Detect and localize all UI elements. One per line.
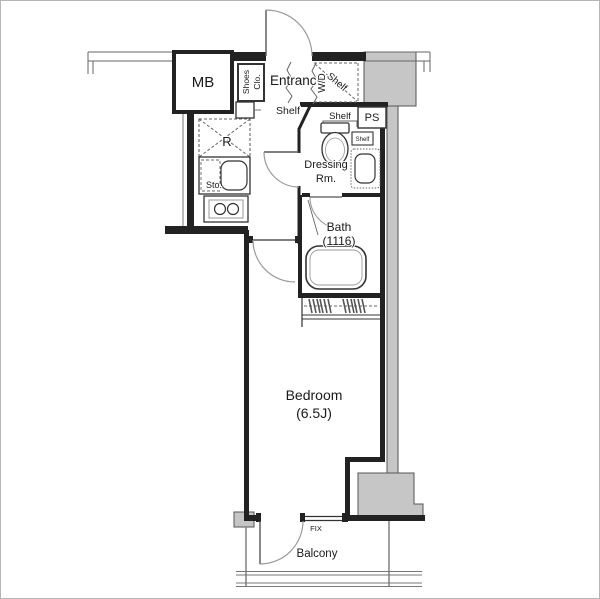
column-bottom-right (358, 473, 423, 519)
dressing-room-label-2: Rm. (316, 173, 336, 185)
mb-label: MB (192, 74, 215, 91)
entrance-label: Entrance (270, 73, 324, 88)
entrance-shelf-label: Shelf (276, 105, 300, 117)
image-border (1, 1, 600, 599)
toilet-shelf-label: Shelf (329, 111, 351, 122)
wall-under-column (345, 515, 425, 521)
kitchen-step-wall (165, 226, 248, 234)
storage-label: Sto. (206, 180, 222, 190)
balcony-door-post-left (256, 513, 261, 522)
shoes-closet-label-2: Clo. (252, 74, 262, 89)
side-shelf-label: Shelf (356, 137, 370, 143)
fridge-label: R (222, 134, 231, 149)
bedroom-step-wall-v (345, 457, 350, 520)
bedroom-label: Bedroom (286, 387, 343, 403)
bedroom-step-wall-h (345, 457, 385, 462)
ps-label: PS (365, 112, 380, 124)
bath-left-wall (298, 195, 302, 298)
floor-plan-svg: MB Shoes Clo. Entrance Shelf W/D Shelf P… (0, 0, 600, 599)
kitchen-left-wall (187, 112, 194, 230)
bath-top-wall-left (302, 193, 310, 197)
bathtub (306, 246, 366, 289)
balcony-label: Balcony (297, 548, 338, 560)
entrance-top-wall-right (312, 52, 366, 61)
column-top-right (364, 52, 416, 106)
bedroom-left-wall (244, 230, 249, 521)
bedroom-door-post-left (246, 236, 253, 243)
bedroom-door-post-right (295, 236, 302, 243)
bath-size-label: (1116) (323, 234, 356, 248)
balcony-door-post-right (300, 513, 305, 522)
bath-label: Bath (327, 220, 352, 234)
bath-top-wall-right (342, 193, 382, 197)
entrance-top-wall-left (230, 52, 266, 61)
exterior-wall-strip (387, 106, 398, 473)
toilet-tank (321, 123, 349, 133)
bedroom-size-label: (6.5J) (296, 405, 332, 421)
bath-bottom-wall (298, 293, 382, 298)
fix-label: FIX (310, 524, 322, 533)
dressing-room-label-1: Dressing (304, 159, 347, 171)
floor-plan-image: MB Shoes Clo. Entrance Shelf W/D Shelf P… (0, 0, 600, 599)
right-wall (380, 106, 385, 462)
shoes-closet-label-1: Shoes (241, 70, 251, 94)
